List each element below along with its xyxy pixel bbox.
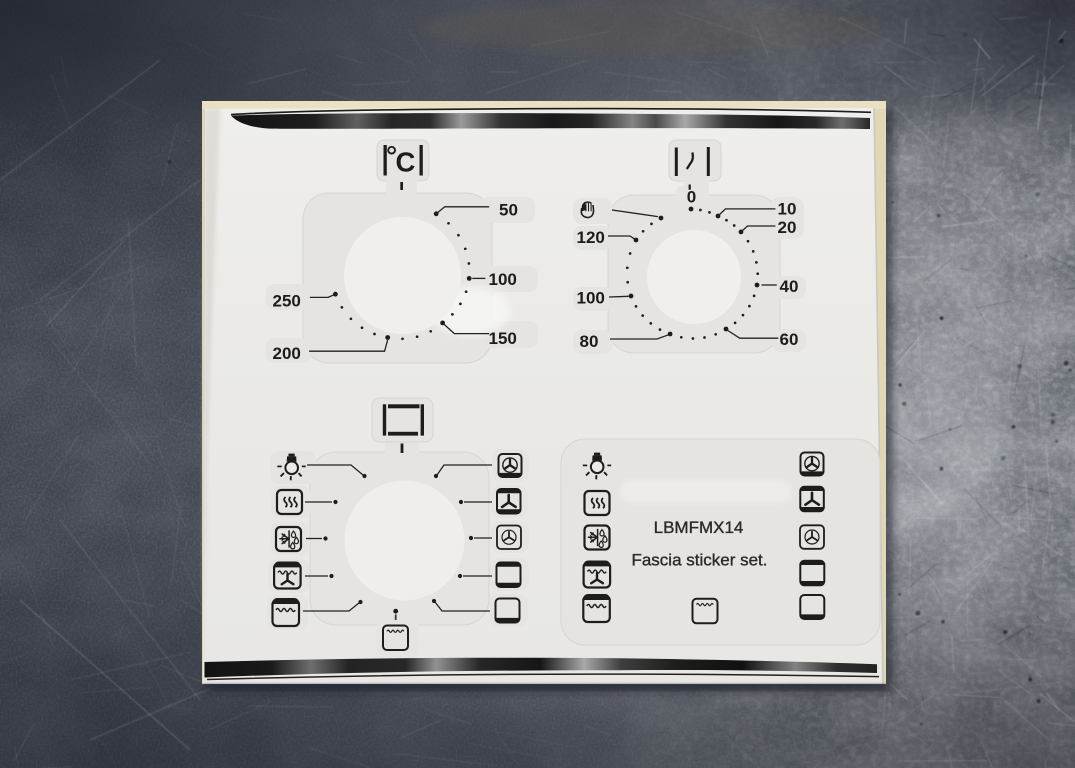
svg-text:200: 200 [273,344,301,363]
svg-text:120: 120 [577,228,605,247]
svg-text:100: 100 [489,270,517,289]
svg-text:Fascia sticker set.: Fascia sticker set. [631,551,767,570]
svg-text:C: C [396,147,416,178]
svg-text:LBMFMX14: LBMFMX14 [654,518,744,537]
svg-text:100: 100 [577,289,605,308]
svg-text:10: 10 [778,200,797,219]
svg-text:150: 150 [489,329,517,348]
svg-text:50: 50 [499,201,518,220]
svg-text:0: 0 [687,188,696,207]
svg-text:80: 80 [580,332,599,351]
svg-text:40: 40 [780,277,799,296]
svg-text:60: 60 [780,330,799,349]
svg-text:250: 250 [273,292,301,311]
svg-text:20: 20 [778,218,797,237]
